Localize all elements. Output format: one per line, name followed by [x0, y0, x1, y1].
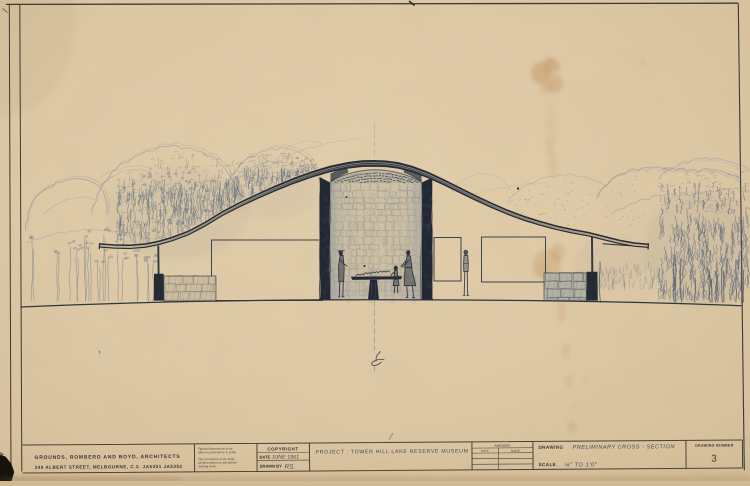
svg-text:JUNE 1961: JUNE 1961: [270, 455, 299, 461]
svg-text:DRAWN BY: DRAWN BY: [260, 464, 283, 469]
svg-text:¼" TO 1'0": ¼" TO 1'0": [565, 462, 598, 468]
svg-text:3: 3: [711, 454, 717, 465]
svg-text:SCALE: SCALE: [539, 462, 557, 467]
svg-text:RS.: RS.: [285, 464, 296, 471]
svg-text:taken in preference to sca: taken in preference to scale.: [198, 450, 237, 454]
svg-text:NAME: NAME: [511, 449, 520, 453]
svg-text:PRELIMINARY CROSS - SECTION: PRELIMINARY CROSS - SECTION: [572, 444, 675, 451]
svg-text:PROJECT : TOWER HILL LAKE RESE: PROJECT : TOWER HILL LAKE RESERVE MUSEUM: [315, 449, 468, 456]
svg-text:AMENDED: AMENDED: [494, 444, 511, 448]
svg-text:DATE: DATE: [481, 449, 489, 453]
svg-text:GROUNDS, ROMBERG AND BOYD, ARC: GROUNDS, ROMBERG AND BOYD, ARCHITECTS: [34, 454, 180, 461]
svg-text:COPYRIGHT: COPYRIGHT: [267, 446, 298, 451]
svg-text:DATE: DATE: [259, 455, 270, 460]
svg-text:starting work.: starting work.: [198, 464, 217, 468]
svg-text:DRAWING NUMBER: DRAWING NUMBER: [695, 443, 733, 447]
svg-text:340 ALBERT STREET, MELBOURNE,: 340 ALBERT STREET, MELBOURNE, C.2. JA535…: [35, 464, 183, 470]
svg-text:DRAWING: DRAWING: [538, 445, 563, 450]
